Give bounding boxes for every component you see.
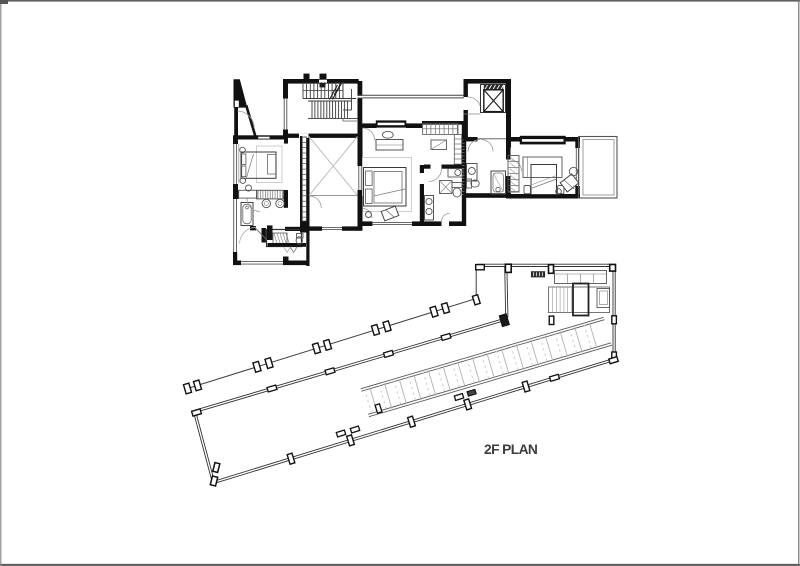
svg-text:2F PLAN: 2F PLAN [484, 442, 538, 457]
